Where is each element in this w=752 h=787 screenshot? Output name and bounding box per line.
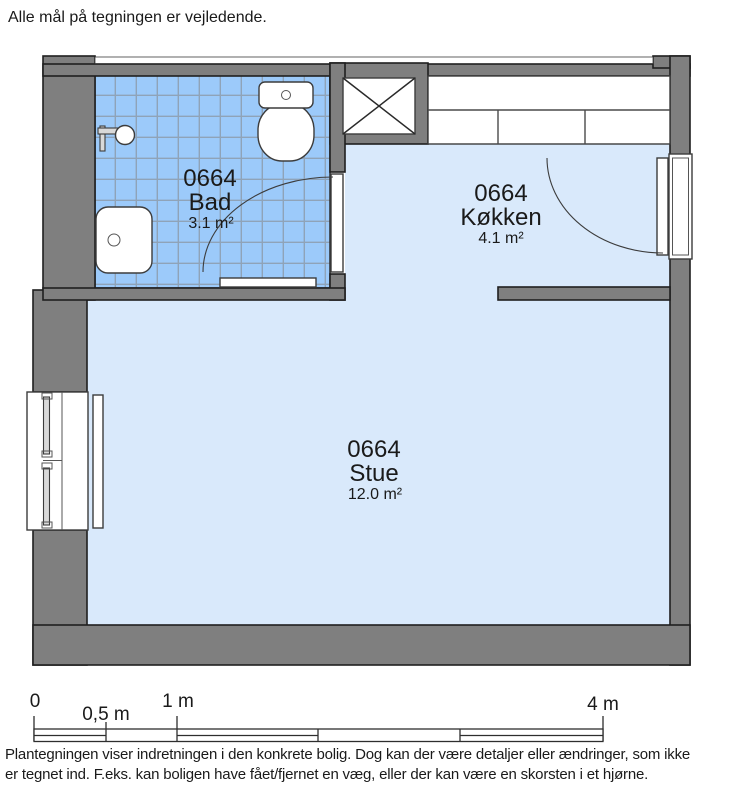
disclaimer-line-1: Plantegningen viser indretningen i den k… — [5, 745, 752, 765]
wall-right-upper — [670, 56, 690, 155]
kitchen-name: Køkken — [460, 204, 541, 231]
wall-bottom — [33, 625, 690, 665]
wall-left-mid — [33, 290, 87, 392]
disclaimer-text: Plantegningen viser indretningen i den k… — [5, 745, 752, 785]
kitchen-area: 4.1 m² — [478, 230, 524, 247]
bathroom-number: 0664 — [183, 165, 236, 192]
floors — [87, 75, 670, 625]
scale-label-0: 0 — [30, 691, 41, 712]
bathroom-door-leaf — [331, 174, 343, 272]
scale-label-4m: 4 m — [587, 694, 619, 715]
sink-symbol — [96, 207, 152, 273]
wall-kitchen-livingroom-divider — [498, 287, 670, 300]
disclaimer-line-2: er tegnet ind. F.eks. kan boligen have f… — [5, 765, 752, 785]
wall-left-upper — [43, 56, 95, 300]
scale-bar: 0 0,5 m 1 m 4 m — [30, 691, 619, 742]
toilet-symbol — [258, 82, 314, 161]
scale-label-1m: 1 m — [162, 691, 194, 712]
entrance-door-leaf — [657, 158, 668, 255]
window-symbol — [27, 392, 88, 530]
livingroom-area: 12.0 m² — [348, 486, 403, 503]
livingroom-name: Stue — [349, 460, 398, 487]
kitchen-number: 0664 — [474, 180, 527, 207]
scale-label-05m: 0,5 m — [82, 704, 130, 725]
livingroom-radiator-symbol — [93, 395, 103, 528]
vent-shaft-symbol — [343, 78, 415, 134]
wall-right-lower — [670, 257, 690, 665]
floor-plan-drawing: 0664 Bad 3.1 m² 0664 Køkken 4.1 m² 0664 … — [0, 0, 752, 743]
bathroom-radiator-symbol — [220, 278, 316, 287]
livingroom-number: 0664 — [347, 436, 400, 463]
floor-plan-page: { "colors": { "wall": "#7f7f7f", "outlin… — [0, 0, 752, 787]
bathroom-name: Bad — [189, 189, 232, 216]
bathroom-area: 3.1 m² — [188, 215, 234, 232]
kitchen-counter-symbol — [428, 76, 670, 144]
wall-bathroom-bottom — [43, 288, 345, 300]
